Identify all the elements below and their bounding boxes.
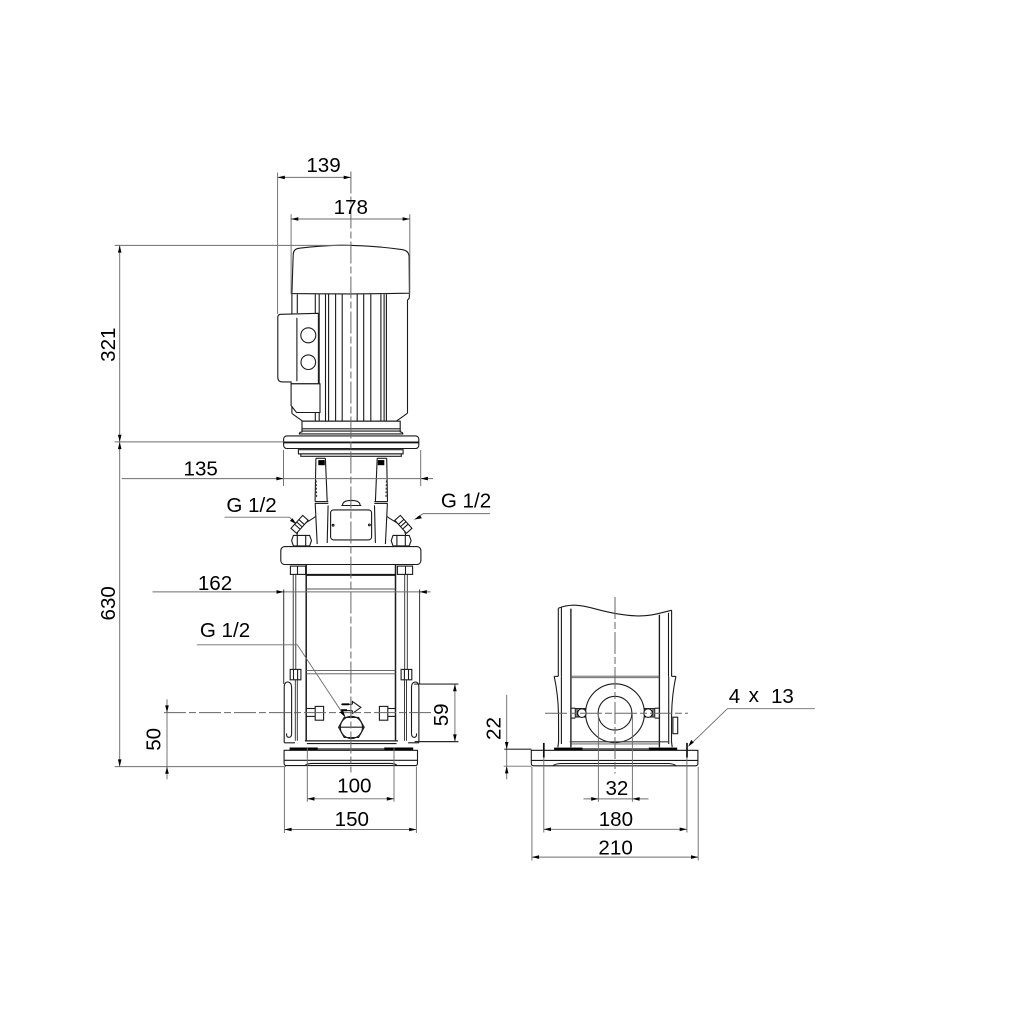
svg-text:210: 210 <box>598 836 632 859</box>
svg-text:4: 4 <box>729 685 740 708</box>
svg-text:32: 32 <box>605 777 628 800</box>
svg-text:630: 630 <box>97 586 120 620</box>
svg-text:G 1/2: G 1/2 <box>226 494 276 517</box>
svg-text:100: 100 <box>337 774 371 797</box>
svg-text:59: 59 <box>430 703 453 726</box>
svg-text:22: 22 <box>483 717 506 740</box>
svg-text:x: x <box>749 684 760 707</box>
svg-text:321: 321 <box>97 328 120 362</box>
svg-text:13: 13 <box>771 685 794 708</box>
svg-text:G 1/2: G 1/2 <box>441 490 491 513</box>
svg-text:G 1/2: G 1/2 <box>200 619 250 642</box>
svg-text:178: 178 <box>334 196 368 219</box>
svg-text:139: 139 <box>306 154 340 177</box>
svg-text:135: 135 <box>184 458 218 481</box>
svg-text:180: 180 <box>599 808 633 831</box>
svg-text:50: 50 <box>143 728 166 751</box>
svg-text:150: 150 <box>335 808 369 831</box>
